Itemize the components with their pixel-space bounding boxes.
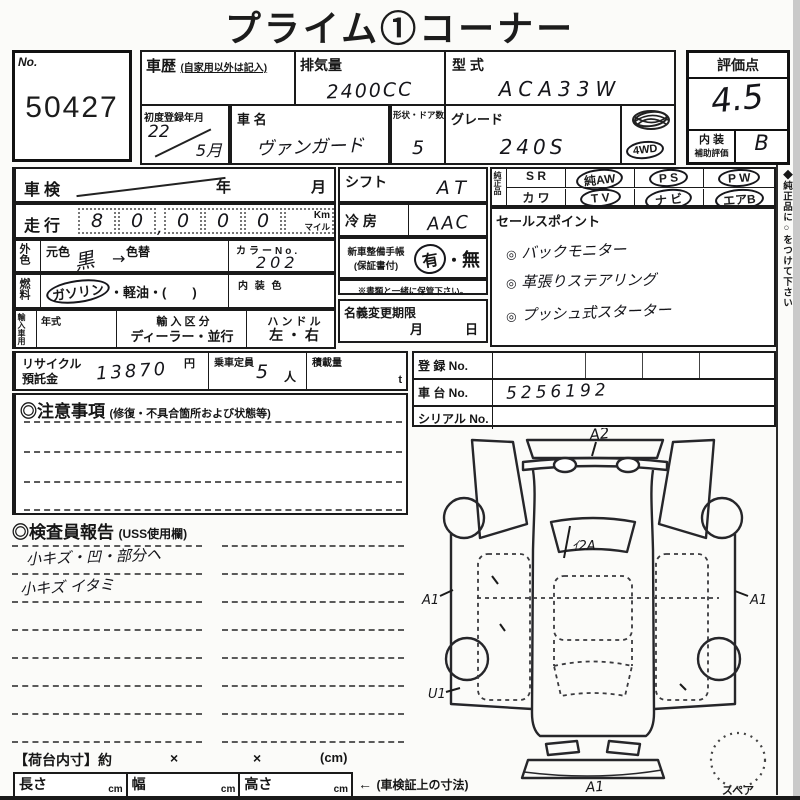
chassis-row: 車 台 No. 5256192 bbox=[414, 380, 774, 407]
divider bbox=[642, 353, 643, 378]
scribbled-out-mark bbox=[630, 108, 672, 132]
length-cell: 長さ cm bbox=[15, 774, 128, 796]
fuel-options: ガソリン・軽油・( ) bbox=[46, 280, 197, 303]
divider bbox=[699, 353, 700, 378]
load-label: 積載量 bbox=[312, 354, 342, 369]
serial-row: シリアル No. bbox=[414, 407, 774, 429]
doors-box: 形状・ドア数 5 bbox=[390, 104, 446, 165]
car-name-value: ヴァンガード bbox=[232, 130, 389, 161]
divider bbox=[306, 353, 307, 389]
mileage-comma: , bbox=[157, 217, 163, 238]
damage-mark-bottom-left: U1 bbox=[428, 687, 446, 702]
ruled-line bbox=[222, 741, 404, 743]
car-dashed-lines bbox=[477, 554, 719, 700]
handbook-selected-circle: 有 bbox=[412, 241, 449, 276]
orig-color-value: 黒 bbox=[71, 243, 97, 276]
handbook-note-strip: ※書類と一緒に保管下さい。 bbox=[338, 279, 488, 295]
ruled-line bbox=[12, 629, 202, 631]
recycle-unit: 円 bbox=[184, 355, 195, 371]
mileage-digit-cell: 0 bbox=[204, 208, 242, 234]
shaken-label: 車検 bbox=[24, 176, 64, 200]
displacement-box: 排気量 2400CC bbox=[294, 50, 446, 106]
history-label: 車歴 bbox=[146, 55, 176, 76]
mileage-unit-km: Km bbox=[286, 210, 330, 221]
ruled-line bbox=[12, 741, 202, 743]
shift-label: シフト bbox=[345, 172, 387, 192]
inspector-report-area: ◎検査員報告 (USS使用欄) 小キズ・凹・部分ヘ 小キズ イタミ bbox=[12, 518, 408, 750]
mileage-row: 走行 8 0 , 0 0 0 Km マイル bbox=[12, 203, 336, 239]
first-reg-month: 5月 bbox=[196, 137, 222, 161]
displacement-label: 排気量 bbox=[300, 55, 342, 75]
ruled-line bbox=[222, 601, 404, 603]
import-label: 輸入車用 bbox=[17, 313, 25, 351]
pen-stroke bbox=[76, 177, 225, 197]
ac-value: AAC bbox=[426, 212, 470, 235]
oem-row-2: カ ワ T V ナ ビ エアB bbox=[507, 189, 774, 207]
divider bbox=[492, 353, 493, 378]
inspector-label: ◎検査員報告 bbox=[12, 523, 114, 542]
circle-mark-icon: ◎ bbox=[506, 247, 517, 261]
displacement-value: 2400CC bbox=[296, 77, 445, 104]
chassis-no-value: 5256192 bbox=[506, 380, 610, 404]
transfer-label: 名義変更期限 bbox=[344, 304, 416, 321]
ruled-line bbox=[222, 685, 404, 687]
sales-label: セールスポイント bbox=[496, 211, 774, 230]
model-value: ACA33W bbox=[446, 77, 674, 101]
divider bbox=[408, 205, 409, 235]
sales-point: ◎ プッシュ式スターター bbox=[506, 295, 775, 325]
damage-mark-rear-window: ｲ2A bbox=[572, 539, 596, 554]
mileage-digit-cell: 8 bbox=[78, 208, 116, 234]
fuel-label: 燃料 bbox=[18, 278, 29, 308]
car-name-box: 車 名 ヴァンガード bbox=[230, 104, 390, 165]
lot-number: 50427 bbox=[15, 91, 129, 125]
divider bbox=[246, 311, 247, 347]
interior-color-label: 内 装 色 bbox=[238, 277, 284, 292]
handbook-box: 新車整備手帳 (保証書付) 有・無 bbox=[338, 237, 488, 279]
grade-label: グレード bbox=[451, 109, 503, 128]
load-unit: t bbox=[398, 374, 402, 386]
sales-point: ◎ 革張りステアリング bbox=[506, 267, 774, 293]
transfer-month: 月 bbox=[410, 319, 423, 338]
exterior-label: 外色 bbox=[18, 243, 29, 273]
caution-box: ◎注意事項 (修復・不具合箇所および状態等) bbox=[12, 393, 408, 515]
damage-mark-bottom: A1 bbox=[584, 779, 605, 796]
ruled-line bbox=[222, 657, 404, 659]
oem-aw: 純AW bbox=[566, 169, 635, 187]
page-title: プライム①コーナー bbox=[0, 0, 800, 52]
lot-number-box: No. 50427 bbox=[12, 50, 132, 162]
recycle-row: リサイクル 預託金 13870 円 乗車定員 5 人 積載量 t bbox=[12, 351, 408, 391]
times-sign: × bbox=[253, 750, 261, 766]
scan-edge bbox=[793, 0, 800, 800]
mileage-unit-mile: マイル bbox=[286, 221, 330, 233]
grade-box: グレード 240S bbox=[444, 104, 622, 165]
left-arrow-icon: ← bbox=[358, 776, 372, 792]
cargo-unit: (cm) bbox=[320, 750, 347, 765]
times-sign: × bbox=[170, 750, 178, 766]
ruled-line bbox=[12, 601, 202, 603]
divider bbox=[492, 407, 493, 429]
grade-value: 240S bbox=[446, 135, 620, 159]
import-year-label: 年式 bbox=[41, 313, 61, 328]
orig-color-label: 元色 bbox=[46, 243, 70, 260]
first-registration-box: 初度登録年月 22 5月 bbox=[140, 104, 230, 165]
divider bbox=[228, 241, 229, 271]
inspector-line-2: 小キズ イタミ bbox=[20, 574, 115, 600]
damage-mark-right: A1 bbox=[749, 593, 767, 608]
oem-navi: ナ ビ bbox=[635, 189, 704, 207]
divider bbox=[585, 353, 586, 378]
interior-score-value: B bbox=[736, 131, 787, 162]
height-cell: 高さ cm bbox=[240, 774, 351, 796]
shaken-year-label: 年 bbox=[216, 176, 231, 197]
spare-tire-circle bbox=[711, 733, 765, 787]
ruled-line bbox=[24, 481, 402, 483]
serial-no-label: シリアル No. bbox=[418, 410, 489, 427]
recycle-value: 13870 bbox=[95, 359, 169, 385]
cargo-size-row: 【荷台内寸】約 × × (cm) bbox=[12, 748, 412, 770]
ruled-line bbox=[222, 545, 404, 547]
dimensions-table: 長さ cm 幅 cm 高さ cm bbox=[13, 772, 353, 798]
car-damage-diagram: スペア A2 ｲ2A A1 A1 U1 A1 bbox=[420, 428, 776, 800]
capacity-value: 5 bbox=[256, 361, 268, 383]
sales-point: ◎ バックモニター bbox=[506, 233, 775, 263]
registration-table: 登 録 No. 車 台 No. 5256192 シリアル No. bbox=[412, 351, 776, 427]
divider bbox=[492, 380, 493, 405]
first-reg-year: 22 bbox=[148, 122, 170, 142]
capacity-label: 乗車定員 bbox=[214, 354, 254, 369]
circle-mark-icon: ◎ bbox=[506, 276, 517, 290]
ac-label: 冷 房 bbox=[345, 211, 377, 231]
ruled-line bbox=[24, 451, 402, 453]
arrow-right-icon: → bbox=[112, 249, 125, 268]
side-instruction-note: ◆純正品に○をつけて下さい bbox=[779, 170, 793, 500]
divider bbox=[40, 241, 41, 271]
cargo-label: 【荷台内寸】約 bbox=[14, 750, 112, 770]
color-no-value: 202 bbox=[256, 253, 299, 272]
divider bbox=[36, 311, 37, 347]
ruled-line bbox=[24, 509, 402, 511]
handbook-options: 有・無 bbox=[414, 244, 480, 274]
shift-value: AT bbox=[437, 177, 472, 199]
oem-label: 純正品 bbox=[493, 171, 501, 207]
oem-tv: T V bbox=[566, 189, 635, 207]
doors-value: 5 bbox=[392, 137, 444, 159]
oem-airbag: エアB bbox=[704, 189, 774, 207]
model-code-box: 型 式 ACA33W bbox=[444, 50, 676, 106]
caution-note: (修復・不具合箇所および状態等) bbox=[109, 408, 270, 420]
fuel-selected-circle: ガソリン bbox=[45, 276, 112, 308]
ruled-line bbox=[24, 421, 402, 423]
oem-pw: P W bbox=[704, 169, 774, 187]
exterior-color-row: 外色 元色 色替 黒 → カラーNo. 202 bbox=[12, 239, 336, 273]
lot-label: No. bbox=[18, 55, 37, 69]
handle-options: 左 ・ 右 bbox=[254, 325, 334, 345]
import-division-options: ディーラー・並行 bbox=[122, 326, 242, 345]
drive-type-box: 4WD bbox=[620, 104, 676, 165]
chassis-no-label: 車 台 No. bbox=[418, 384, 468, 401]
ruled-line bbox=[222, 713, 404, 715]
oem-row-1: S R 純AW P S P W bbox=[507, 169, 774, 188]
caution-label: ◎注意事項 bbox=[20, 397, 105, 422]
ruled-line bbox=[12, 657, 202, 659]
shaken-month-label: 月 bbox=[311, 176, 326, 197]
ruled-line bbox=[12, 713, 202, 715]
score-box: 評価点 4.5 内 装 補助評価 B bbox=[686, 50, 790, 165]
damage-mark-top: A2 bbox=[588, 428, 611, 444]
capacity-unit: 人 bbox=[284, 368, 296, 385]
handbook-label: 新車整備手帳 (保証書付) bbox=[343, 244, 409, 272]
ruled-line bbox=[222, 573, 404, 575]
ruled-line bbox=[12, 685, 202, 687]
registration-row: 登 録 No. bbox=[414, 353, 774, 380]
transfer-day: 日 bbox=[465, 319, 478, 338]
mileage-unit-cell: Km マイル bbox=[284, 208, 334, 234]
drive-badge: 4WD bbox=[626, 140, 664, 159]
damage-mark-left: A1 bbox=[421, 593, 439, 608]
mileage-digit-cell: 0 bbox=[244, 208, 282, 234]
interior-score-label: 内 装 補助評価 bbox=[689, 131, 736, 162]
divider bbox=[208, 353, 209, 389]
doors-label: 形状・ドア数 bbox=[393, 109, 444, 121]
divider bbox=[228, 275, 229, 307]
circle-mark-icon: ◎ bbox=[506, 309, 517, 323]
model-label: 型 式 bbox=[452, 55, 484, 75]
car-outline bbox=[444, 440, 742, 778]
divider bbox=[40, 275, 41, 307]
recycle-label2: 預託金 bbox=[22, 370, 58, 387]
history-box: 車歴 (自家用以外は記入) bbox=[140, 50, 296, 106]
width-cell: 幅 cm bbox=[128, 774, 241, 796]
oem-sr: S R bbox=[507, 169, 566, 187]
mileage-digit-cell: 0 bbox=[118, 208, 156, 234]
reg-no-label: 登 録 No. bbox=[418, 357, 468, 374]
import-row: 輸入車用 年式 輸 入 区 分 ディーラー・並行 ハ ン ド ル 左 ・ 右 bbox=[12, 309, 336, 349]
shaken-row: 車検 年 月 bbox=[12, 167, 336, 203]
transfer-deadline-box: 名義変更期限 月 日 bbox=[338, 299, 488, 343]
history-note: (自家用以外は記入) bbox=[180, 63, 267, 74]
ruled-line bbox=[222, 629, 404, 631]
oem-leather: カ ワ bbox=[507, 189, 566, 207]
mileage-digit-cell: 0 bbox=[164, 208, 202, 234]
oem-parts-table: 純正品 S R 純AW P S P W カ ワ T V ナ ビ エアB bbox=[490, 167, 776, 207]
damage-marks: A2 ｲ2A A1 A1 U1 A1 bbox=[421, 428, 767, 796]
inspector-line-1: 小キズ・凹・部分ヘ bbox=[26, 544, 162, 570]
divider bbox=[116, 311, 117, 347]
ac-box: 冷 房 AAC bbox=[338, 203, 488, 237]
shift-box: シフト AT bbox=[338, 167, 488, 203]
right-column-border bbox=[776, 165, 778, 795]
oem-ps: P S bbox=[635, 169, 704, 187]
inspector-note: (USS使用欄) bbox=[118, 527, 187, 541]
color-change-label: 色替 bbox=[126, 243, 150, 260]
car-name-label: 車 名 bbox=[237, 109, 267, 128]
scan-bottom-edge bbox=[0, 796, 800, 800]
interior-score-row: 内 装 補助評価 B bbox=[689, 129, 787, 162]
sales-points-box: セールスポイント ◎ バックモニター ◎ 革張りステアリング ◎ プッシュ式スタ… bbox=[490, 207, 776, 347]
fuel-row: 燃料 ガソリン・軽油・( ) 内 装 色 bbox=[12, 273, 336, 309]
mileage-label: 走行 bbox=[24, 212, 64, 236]
